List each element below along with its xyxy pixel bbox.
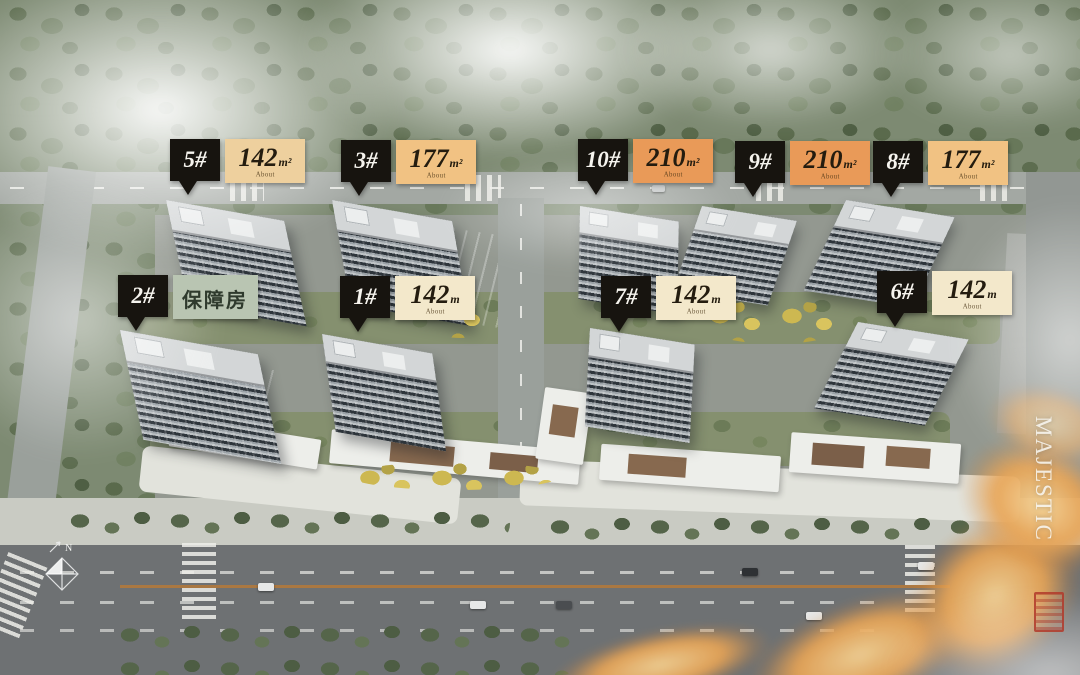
area-value: 保障房: [182, 284, 248, 313]
fog-cloud: [880, 0, 1080, 130]
tag-number-text: 5#: [184, 147, 207, 173]
tag-number: 8#: [873, 141, 923, 183]
building-tag-7: 7# 142m About: [601, 276, 736, 320]
tag-area-panel: 保障房: [173, 275, 258, 319]
tag-area-panel: 177m² About: [396, 140, 476, 184]
car: [742, 568, 758, 576]
tag-number-text: 7#: [615, 284, 638, 310]
tag-number-text: 3#: [355, 148, 378, 174]
aerial-masterplan-rendering: 5# 142m² About 3# 177m² About 10# 210m² …: [0, 0, 1080, 675]
approx-label: About: [425, 309, 444, 316]
seal-stamp: [1034, 592, 1064, 632]
tag-number: 3#: [341, 140, 391, 182]
tower-7: [585, 328, 695, 443]
compass: N: [40, 536, 84, 596]
tag-number: 6#: [877, 271, 927, 313]
approx-label: About: [686, 309, 705, 316]
lane-line: [20, 601, 890, 604]
watermark-majestic: MAJESTIC: [1030, 416, 1056, 591]
street-trees: [540, 512, 970, 548]
building-tag-3: 3# 177m² About: [341, 140, 476, 184]
tag-number: 2#: [118, 275, 168, 317]
area-value: 142: [947, 275, 986, 305]
area-unit: m²: [687, 155, 700, 170]
building-tag-8: 8# 177m² About: [873, 141, 1008, 185]
car: [258, 583, 274, 591]
building-tag-6: 6# 142m About: [877, 271, 1012, 315]
approx-label: About: [255, 172, 274, 179]
building-tag-2: 2# 保障房: [118, 275, 258, 319]
area-unit: m²: [982, 157, 995, 172]
tag-number: 10#: [578, 139, 628, 181]
tag-area-panel: 142m About: [395, 276, 475, 320]
tag-area-panel: 142m About: [656, 276, 736, 320]
tag-area-panel: 177m² About: [928, 141, 1008, 185]
compass-north-label: N: [65, 543, 72, 554]
building-tag-1: 1# 142m About: [340, 276, 475, 320]
tag-area-panel: 210m² About: [633, 139, 713, 183]
area-unit: m: [987, 287, 996, 302]
tag-number-text: 1#: [354, 284, 377, 310]
tag-area-panel: 142m² About: [225, 139, 305, 183]
car: [470, 601, 486, 609]
center-line-orange: [120, 585, 950, 588]
tag-number-text: 10#: [586, 147, 621, 173]
tag-number: 9#: [735, 141, 785, 183]
fog-cloud: [0, 180, 220, 460]
fog-cloud: [950, 200, 1080, 480]
approx-label: About: [426, 173, 445, 180]
street-trees: [60, 506, 510, 542]
approx-label: About: [663, 172, 682, 179]
tag-area-panel: 142m About: [932, 271, 1012, 315]
street-trees: [110, 620, 580, 675]
area-value: 142: [410, 280, 449, 310]
crosswalk: [182, 543, 216, 619]
tag-number: 7#: [601, 276, 651, 318]
building-tag-10: 10# 210m² About: [578, 139, 713, 183]
approx-label: About: [962, 304, 981, 311]
tag-number-text: 8#: [887, 149, 910, 175]
area-value: 177: [410, 144, 449, 174]
approx-label: About: [958, 174, 977, 181]
area-unit: m: [711, 292, 720, 307]
tag-area-panel: 210m² About: [790, 141, 870, 185]
fog-cloud: [620, 0, 920, 130]
tag-number: 5#: [170, 139, 220, 181]
area-value: 177: [942, 145, 981, 175]
area-unit: m: [450, 292, 459, 307]
area-unit: m²: [279, 155, 292, 170]
area-value: 142: [671, 280, 710, 310]
lane-line: [20, 571, 890, 574]
approx-label: About: [820, 174, 839, 181]
area-value: 142: [239, 143, 278, 173]
building-tag-5: 5# 142m² About: [170, 139, 305, 183]
area-value: 210: [804, 145, 843, 175]
tag-number-text: 2#: [132, 283, 155, 309]
area-value: 210: [647, 143, 686, 173]
tag-number-text: 6#: [891, 279, 914, 305]
tag-number-text: 9#: [749, 149, 772, 175]
building-tag-9: 9# 210m² About: [735, 141, 870, 185]
area-unit: m²: [450, 156, 463, 171]
car: [556, 601, 572, 609]
tag-number: 1#: [340, 276, 390, 318]
golden-trees: [350, 462, 560, 490]
area-unit: m²: [844, 157, 857, 172]
